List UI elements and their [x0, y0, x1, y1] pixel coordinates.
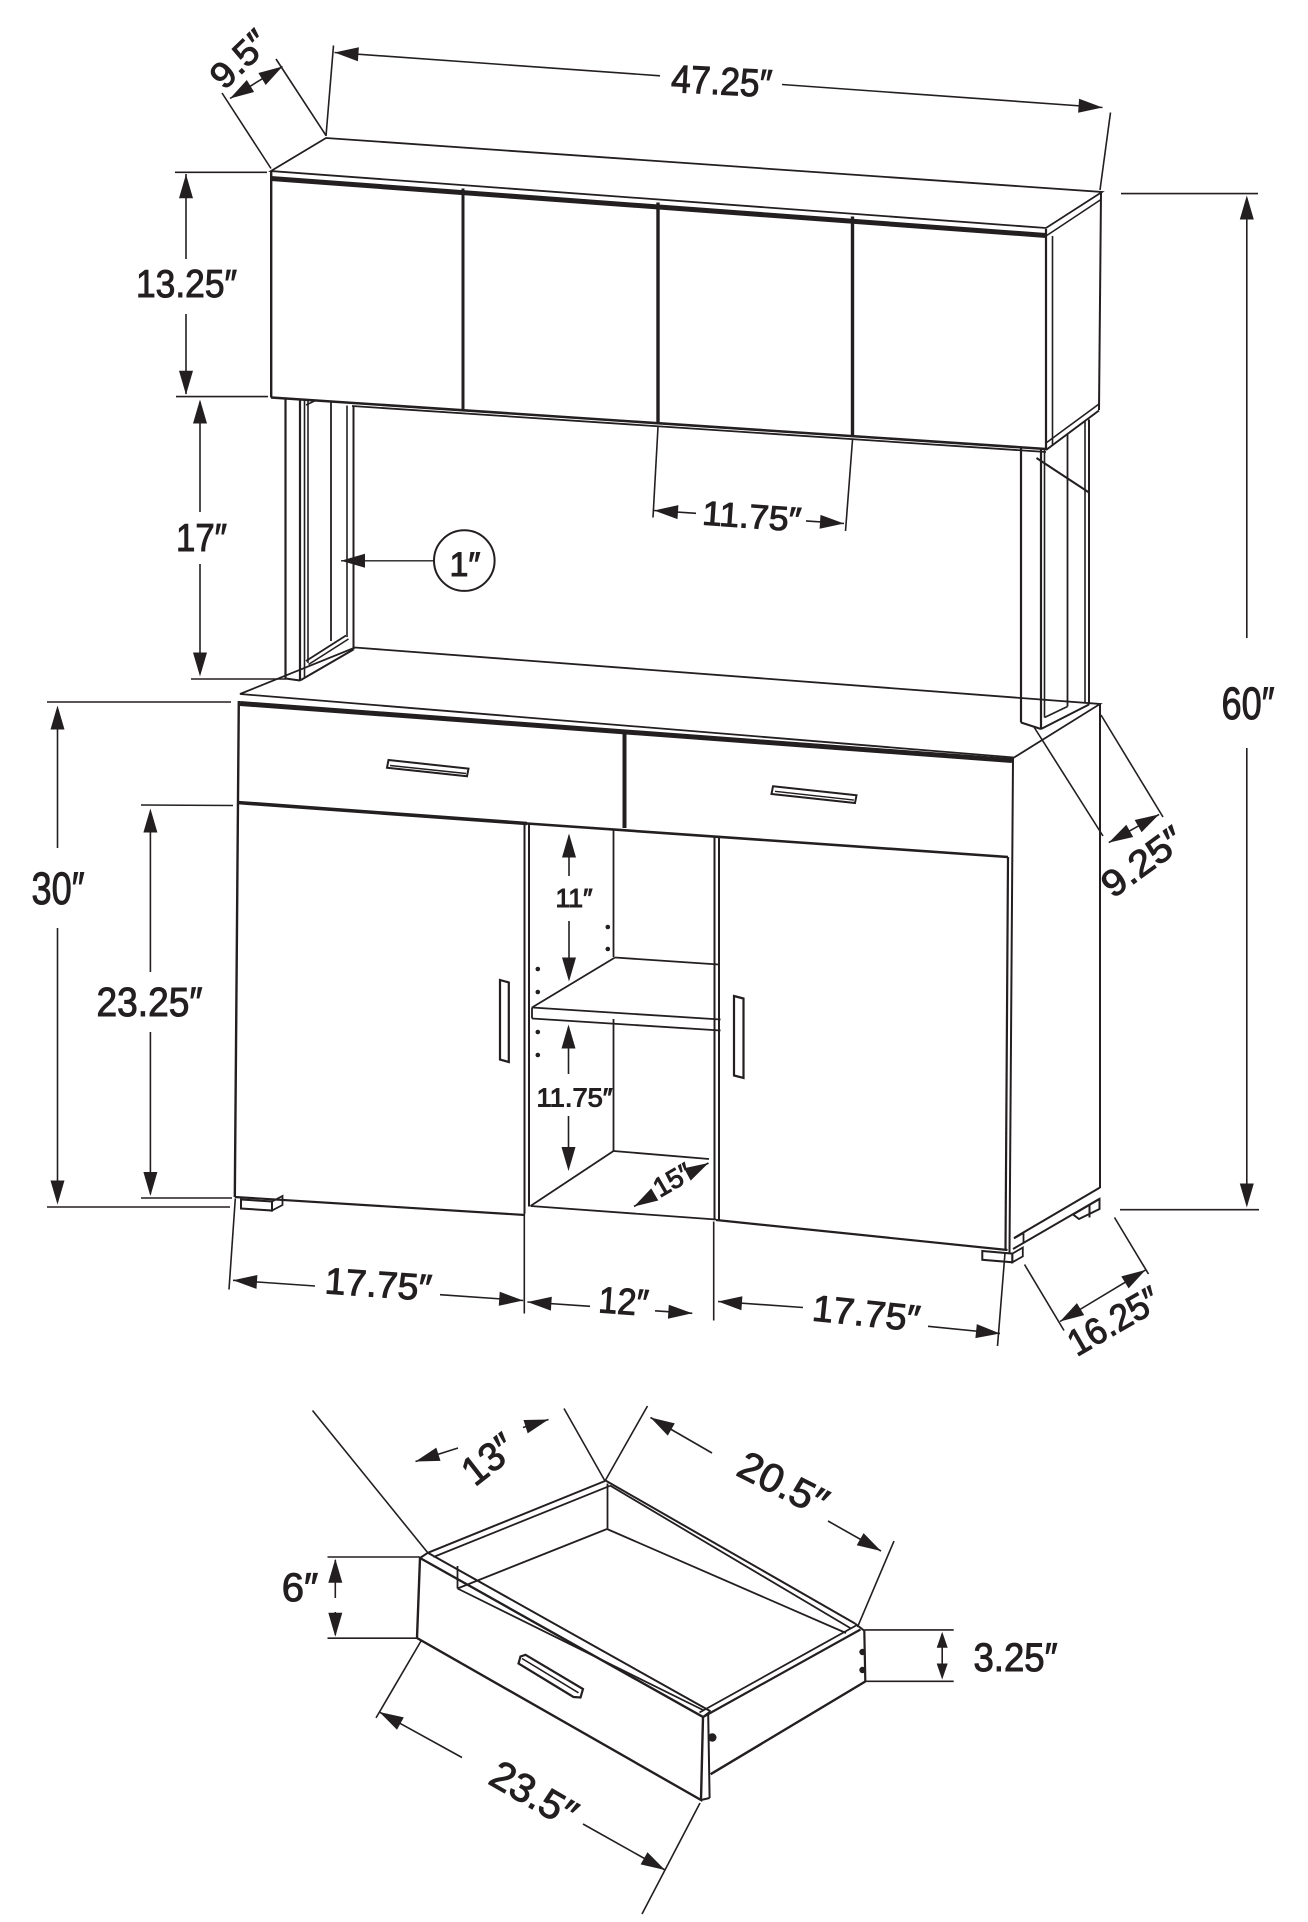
svg-text:13.25″: 13.25″	[136, 263, 237, 306]
svg-text:17.75″: 17.75″	[810, 1288, 922, 1340]
svg-text:23.5″: 23.5″	[482, 1752, 585, 1837]
svg-text:12″: 12″	[597, 1279, 650, 1323]
svg-text:13″: 13″	[453, 1425, 524, 1494]
svg-text:23.25″: 23.25″	[97, 979, 203, 1025]
svg-text:60″: 60″	[1222, 678, 1275, 729]
svg-text:9.5″: 9.5″	[201, 21, 277, 97]
svg-text:47.25″: 47.25″	[670, 58, 773, 106]
svg-text:11.75″: 11.75″	[701, 495, 802, 540]
svg-text:1″: 1″	[450, 546, 481, 584]
svg-text:17″: 17″	[176, 517, 227, 560]
svg-text:9.25″: 9.25″	[1093, 818, 1192, 905]
svg-text:6″: 6″	[282, 1566, 318, 1610]
svg-text:3.25″: 3.25″	[974, 1636, 1058, 1680]
svg-text:16.25″: 16.25″	[1060, 1278, 1167, 1364]
svg-text:30″: 30″	[32, 863, 85, 914]
svg-text:17.75″: 17.75″	[324, 1260, 434, 1308]
svg-text:11″: 11″	[556, 883, 593, 913]
svg-text:20.5″: 20.5″	[731, 1443, 836, 1525]
svg-text:11.75″: 11.75″	[537, 1083, 613, 1113]
